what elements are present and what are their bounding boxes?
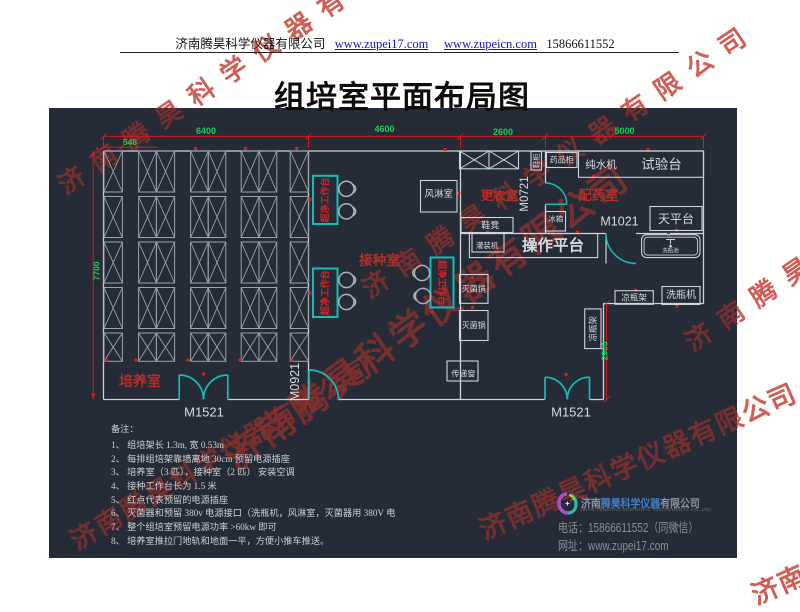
svg-text:操作平台: 操作平台 xyxy=(522,236,584,255)
svg-text:冰箱: 冰箱 xyxy=(548,213,563,223)
svg-text:鞋柜: 鞋柜 xyxy=(531,153,541,168)
svg-text:凉瓶架: 凉瓶架 xyxy=(588,316,598,342)
svg-text:5000: 5000 xyxy=(614,126,634,136)
svg-text:洗瓶池: 洗瓶池 xyxy=(662,247,679,255)
svg-text:4600: 4600 xyxy=(374,124,394,134)
svg-text:7700: 7700 xyxy=(92,261,102,280)
svg-text:M1021: M1021 xyxy=(600,215,638,229)
svg-text:洗瓶机: 洗瓶机 xyxy=(666,288,696,301)
svg-text:灌装机: 灌装机 xyxy=(476,240,499,250)
svg-text:M1521: M1521 xyxy=(184,405,224,420)
svg-text:培养室: 培养室 xyxy=(119,373,161,390)
svg-text:天平台: 天平台 xyxy=(658,211,694,226)
svg-text:纯水机: 纯水机 xyxy=(585,158,617,171)
svg-text:试验台: 试验台 xyxy=(641,157,682,172)
svg-text:更衣室: 更衣室 xyxy=(481,188,519,203)
svg-text:M0921: M0921 xyxy=(288,363,302,401)
svg-text:548: 548 xyxy=(123,137,137,147)
svg-text:灭菌锅: 灭菌锅 xyxy=(462,320,486,330)
svg-text:灭菌锅: 灭菌锅 xyxy=(462,284,486,294)
svg-text:传递窗: 传递窗 xyxy=(451,368,475,378)
svg-text:接种室: 接种室 xyxy=(359,252,400,268)
svg-text:凉瓶架: 凉瓶架 xyxy=(621,293,647,303)
svg-text:配药室: 配药室 xyxy=(578,187,619,203)
svg-text:M0721: M0721 xyxy=(519,176,531,211)
svg-text:鞋凳: 鞋凳 xyxy=(481,220,499,231)
svg-text:超净工作台: 超净工作台 xyxy=(319,270,330,316)
svg-text:M1521: M1521 xyxy=(551,405,591,420)
svg-text:6400: 6400 xyxy=(196,126,216,136)
svg-text:风淋室: 风淋室 xyxy=(425,188,454,200)
svg-text:2600: 2600 xyxy=(493,127,513,137)
svg-text:超净工作台: 超净工作台 xyxy=(437,259,448,305)
svg-text:药品柜: 药品柜 xyxy=(550,155,574,165)
svg-text:超净工作台: 超净工作台 xyxy=(319,177,330,223)
